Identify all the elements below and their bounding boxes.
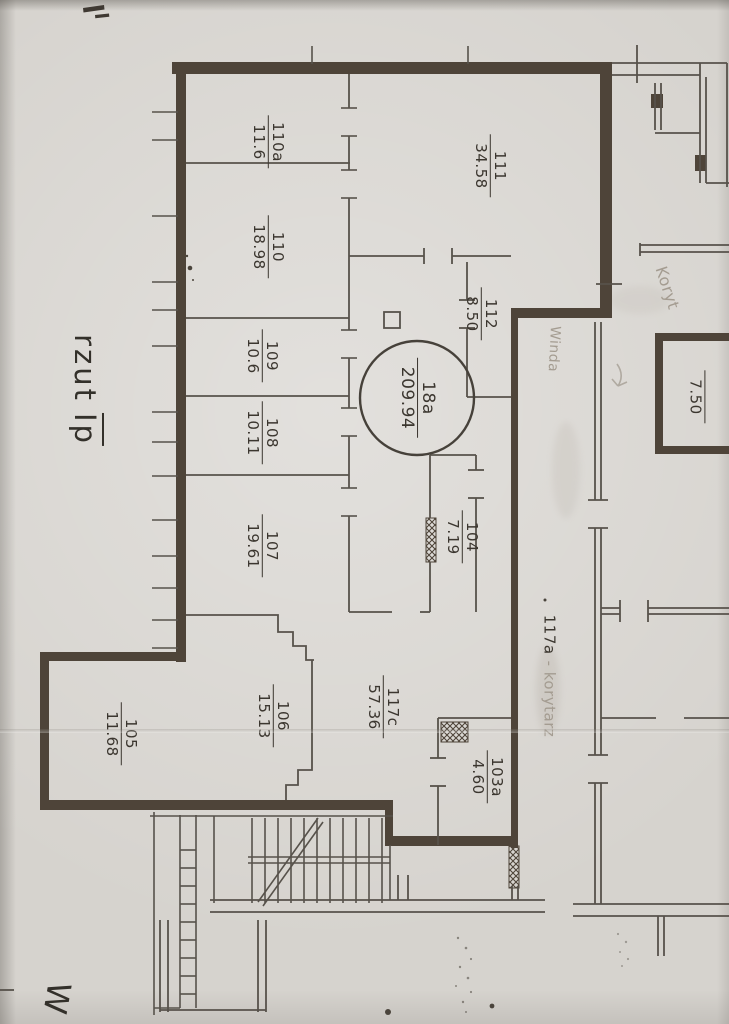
staircase bbox=[150, 812, 393, 1015]
corner-letter: W bbox=[36, 979, 79, 1017]
corridor-label: 117a - korytarz bbox=[541, 615, 558, 738]
room-label-104: 104 7.19 bbox=[444, 510, 480, 563]
room-label-111: 111 34.58 bbox=[472, 134, 508, 197]
hatched-wall-segments bbox=[426, 518, 519, 888]
room-label-103a: 103a 4.60 bbox=[469, 750, 505, 803]
room-label-107: 107 19.61 bbox=[244, 514, 280, 577]
room-label-112: 112 8.50 bbox=[463, 287, 499, 340]
room-label-110: 110 18.98 bbox=[250, 215, 286, 278]
room-label-108: 108 10.11 bbox=[244, 401, 280, 464]
room-label-side-room: 7.50 bbox=[687, 370, 706, 423]
scanned-floor-plan-page: 110a 11.6 110 18.98 111 34.58 112 8.50 1… bbox=[0, 0, 729, 1024]
room-label-110a: 110a 11.6 bbox=[250, 115, 286, 168]
room-label-117c: 117c 57.36 bbox=[365, 675, 401, 738]
pencil-note-winda: Winda bbox=[544, 325, 562, 372]
room-label-106: 106 15.13 bbox=[255, 684, 291, 747]
room-label-105: 105 11.68 bbox=[103, 702, 139, 765]
unit-area-badge: 18a 209.94 bbox=[397, 358, 437, 438]
tick-marks bbox=[152, 46, 468, 648]
thin-walls bbox=[0, 45, 729, 1012]
room-label-109: 109 10.6 bbox=[244, 329, 280, 382]
floor-plan-drawing bbox=[0, 0, 729, 1024]
plan-title: rzutIp bbox=[68, 334, 102, 446]
